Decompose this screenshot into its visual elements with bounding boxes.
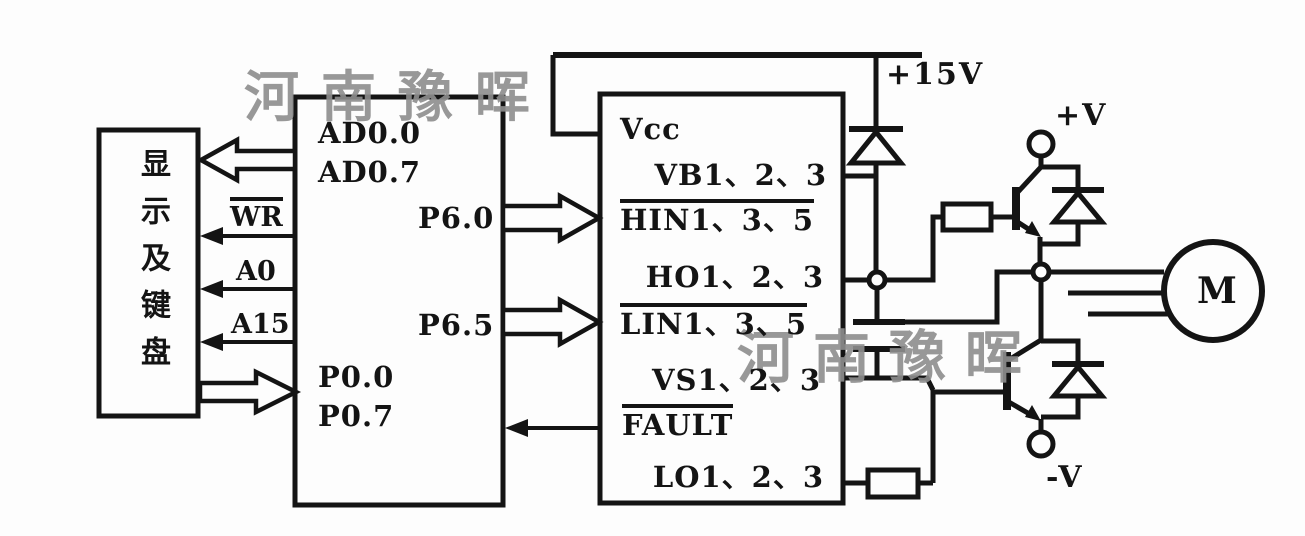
phase-node-circle: [1033, 264, 1049, 280]
mcu-p60-label: P6.0: [418, 204, 494, 233]
driver-ho-label: HO1、2、3: [646, 263, 824, 292]
high-gate-wire: [885, 217, 943, 280]
vcc-feed-wire: [553, 55, 600, 134]
fault-arrowhead: [505, 419, 528, 437]
driver-fault-label: FAULT: [622, 404, 733, 440]
high-gate-resistor: [943, 204, 991, 230]
fault-text: FAULT: [622, 404, 733, 440]
a15-label: A15: [231, 311, 290, 338]
a15-arrowhead: [200, 333, 223, 351]
display-keyboard-label: 显示及键盘: [130, 148, 174, 383]
positive-terminal-circle: [1029, 132, 1053, 156]
a0-arrowhead: [200, 280, 223, 298]
negative-bus-label: -V: [1046, 463, 1084, 493]
driver-vb-label: VB1、2、3: [654, 161, 827, 190]
wr-label: WR: [230, 197, 283, 231]
low-gate-resistor: [868, 470, 918, 497]
mcu-p00-label: P0.0: [318, 363, 394, 392]
driver-lo-label: LO1、2、3: [653, 463, 824, 492]
rail-15v-label: +15V: [886, 60, 984, 90]
driver-vcc-label: Vcc: [620, 115, 681, 144]
upper-igbt-collector: [1016, 167, 1041, 194]
positive-bus-label: +V: [1055, 101, 1107, 131]
driver-hin-label: HIN1、3、5: [620, 199, 814, 235]
mcu-ad00-label: AD0.0: [318, 119, 421, 148]
lower-freewheel-diode-icon: [1054, 367, 1102, 396]
lower-emitter-arrow: [1025, 405, 1041, 421]
ho-node-circle: [869, 272, 885, 288]
lower-diode-wire-bottom: [1041, 396, 1078, 417]
upper-diode-wire-bottom: [1041, 222, 1078, 244]
upper-freewheel-diode-icon: [1054, 193, 1102, 222]
hin-text: HIN1、3、5: [620, 199, 814, 235]
wr-arrowhead: [200, 227, 223, 245]
p60-bus-arrow: [503, 196, 599, 240]
mcu-p07-label: P0.7: [318, 402, 394, 431]
a0-label: A0: [236, 258, 276, 285]
mcu-ad07-label: AD0.7: [318, 158, 421, 187]
negative-terminal-circle: [1029, 432, 1053, 456]
lower-diode-wire-top: [1041, 341, 1078, 362]
driver-lin-label: LIN1、3、5: [620, 303, 807, 339]
upper-emitter-arrow: [1025, 221, 1041, 237]
motor-label: M: [1197, 273, 1237, 309]
bootstrap-diode-icon: [851, 132, 901, 163]
ad-bus-arrow: [201, 140, 295, 180]
circuit-diagram: 河南豫晖 河南豫晖 显示及键盘 WR A0 A15 AD0.0 AD0.7 P6…: [0, 0, 1305, 536]
lin-text: LIN1、3、5: [620, 303, 807, 339]
upper-diode-wire-top: [1041, 167, 1078, 188]
mcu-p65-label: P6.5: [418, 311, 494, 340]
p65-bus-arrow: [503, 300, 599, 344]
driver-vs-label: VS1、2、3: [652, 366, 821, 395]
wr-text: WR: [230, 197, 283, 231]
p0-bus-arrow: [200, 372, 296, 412]
